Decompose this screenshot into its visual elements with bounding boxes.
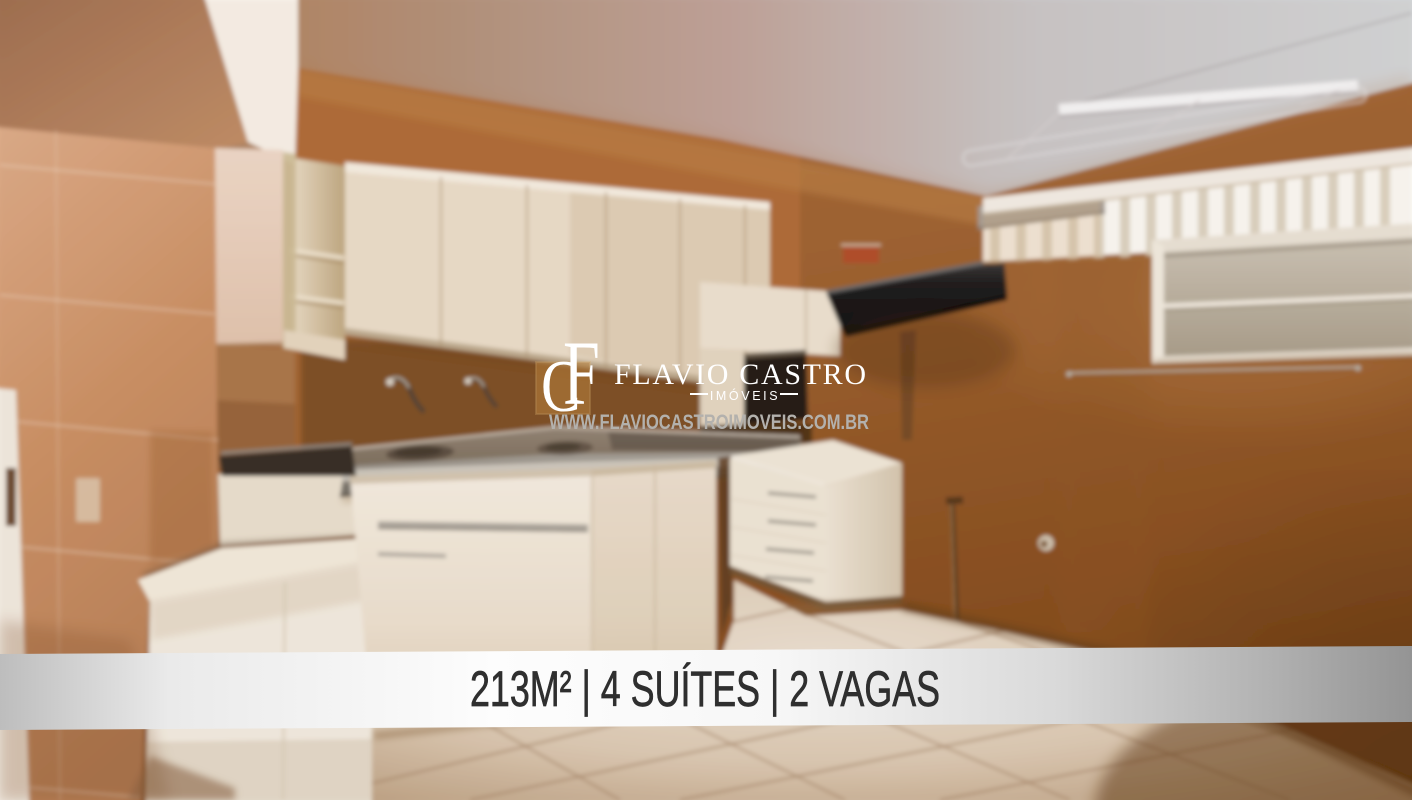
svg-text:FLAVIO CASTRO: FLAVIO CASTRO <box>614 358 866 391</box>
svg-text:213M² | 4 SUÍTES | 2 VAGAS: 213M² | 4 SUÍTES | 2 VAGAS <box>470 661 940 717</box>
svg-text:F: F <box>563 324 600 425</box>
svg-text:IMÓVEIS: IMÓVEIS <box>710 388 780 403</box>
svg-text:WWW.FLAVIOCASTROIMOVEIS.COM.BR: WWW.FLAVIOCASTROIMOVEIS.COM.BR <box>549 411 869 434</box>
